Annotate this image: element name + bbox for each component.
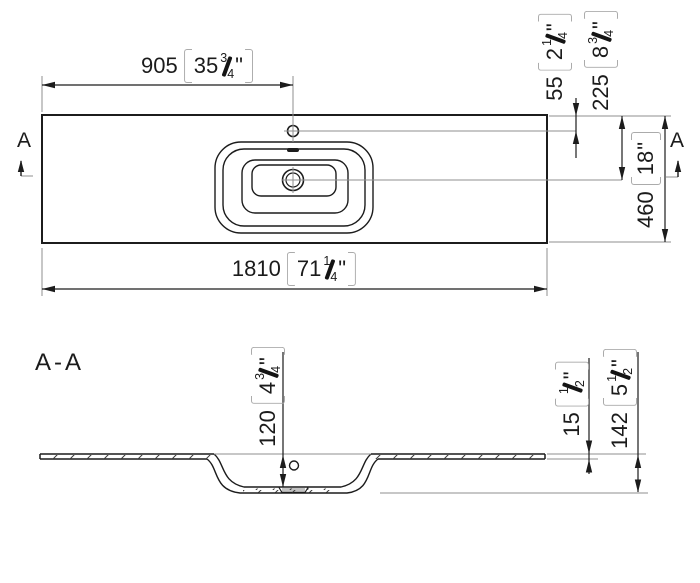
dim-mm-value: 120 <box>257 410 279 447</box>
fraction-denominator: 4 <box>330 271 337 284</box>
dim-inch-whole: 18 <box>635 151 657 175</box>
dim-inch-box: 8 3 4 " <box>584 11 618 68</box>
fraction-denominator: 4 <box>227 68 234 81</box>
fraction-numerator: 1 <box>541 39 554 46</box>
section-profile <box>40 454 545 493</box>
inch-mark: " <box>635 142 657 150</box>
dim-mm-value: 15 <box>561 412 583 436</box>
dim-inch-fraction: 1 2 <box>607 368 633 382</box>
section-view-title: A-A <box>35 349 84 377</box>
overflow-slot <box>287 148 299 152</box>
dim-inch-fraction: 3 4 <box>588 30 614 44</box>
inch-mark: " <box>257 357 279 365</box>
dim-drain-from-top-edge-label: 225 8 3 4 " <box>584 11 618 111</box>
dim-inch-fraction: 3 4 <box>220 53 234 79</box>
dim-inch-whole: 8 <box>590 46 612 58</box>
fraction-numerator: 1 <box>606 375 619 382</box>
inch-mark: " <box>338 258 346 280</box>
inch-mark: " <box>235 55 243 77</box>
section-cut-label-right: A <box>670 129 684 153</box>
dim-inch-box: 2 1 4 " <box>538 13 572 70</box>
section-dimension-arrows <box>280 441 641 493</box>
dim-inch-box: 71 1 4 " <box>287 252 356 286</box>
dim-inch-fraction: 1 2 <box>559 380 585 394</box>
dim-inch-box: 18 " <box>631 132 661 185</box>
inch-mark: " <box>561 371 583 379</box>
dim-inch-box: 35 3 4 " <box>184 49 253 83</box>
technical-drawing-sheet: 905 35 3 4 " 55 2 1 4 " 225 8 <box>0 0 700 583</box>
dim-inch-box: 5 1 2 " <box>603 349 637 406</box>
dim-mm-value: 225 <box>590 74 612 111</box>
section-cut-label-left: A <box>17 129 31 153</box>
fraction-numerator: 3 <box>587 37 600 44</box>
dim-inch-whole: 5 <box>609 384 631 396</box>
overflow-hole-section <box>290 461 299 470</box>
dim-basin-depth-label: 120 4 3 4 " <box>251 347 285 447</box>
dim-inch-fraction: 1 4 <box>323 256 337 282</box>
dim-mm-value: 55 <box>544 76 566 100</box>
dim-faucet-from-top-edge-label: 55 2 1 4 " <box>538 13 572 100</box>
dim-inch-whole: 2 <box>544 48 566 60</box>
section-cut-arrow-left <box>18 160 24 172</box>
fraction-numerator: 3 <box>254 373 267 380</box>
dim-depth-label: 460 18 " <box>631 132 661 228</box>
top-view-countertop <box>42 115 547 243</box>
dim-mm-value: 905 <box>141 55 178 77</box>
dim-total-height-label: 142 5 1 2 " <box>603 349 637 449</box>
dim-inch-box: 1 2 " <box>555 361 589 406</box>
dim-inch-whole: 4 <box>257 382 279 394</box>
dim-inch-whole: 71 <box>297 258 321 280</box>
dim-inch-fraction: 3 4 <box>255 366 281 380</box>
dim-inch-box: 4 3 4 " <box>251 347 285 404</box>
dim-faucet-from-left-label: 905 35 3 4 " <box>141 49 253 83</box>
section-cut-arrow-right <box>675 160 681 172</box>
dim-total-width-label: 1810 71 1 4 " <box>232 252 356 286</box>
dim-mm-value: 1810 <box>232 258 281 280</box>
dim-mm-value: 142 <box>609 412 631 449</box>
dim-inch-fraction: 1 4 <box>542 32 568 46</box>
inch-mark: " <box>590 21 612 29</box>
inch-mark: " <box>609 359 631 367</box>
dim-inch-whole: 35 <box>194 55 218 77</box>
dim-mm-value: 460 <box>635 191 657 228</box>
dim-material-thickness-label: 15 1 2 " <box>555 361 589 436</box>
inch-mark: " <box>544 23 566 31</box>
